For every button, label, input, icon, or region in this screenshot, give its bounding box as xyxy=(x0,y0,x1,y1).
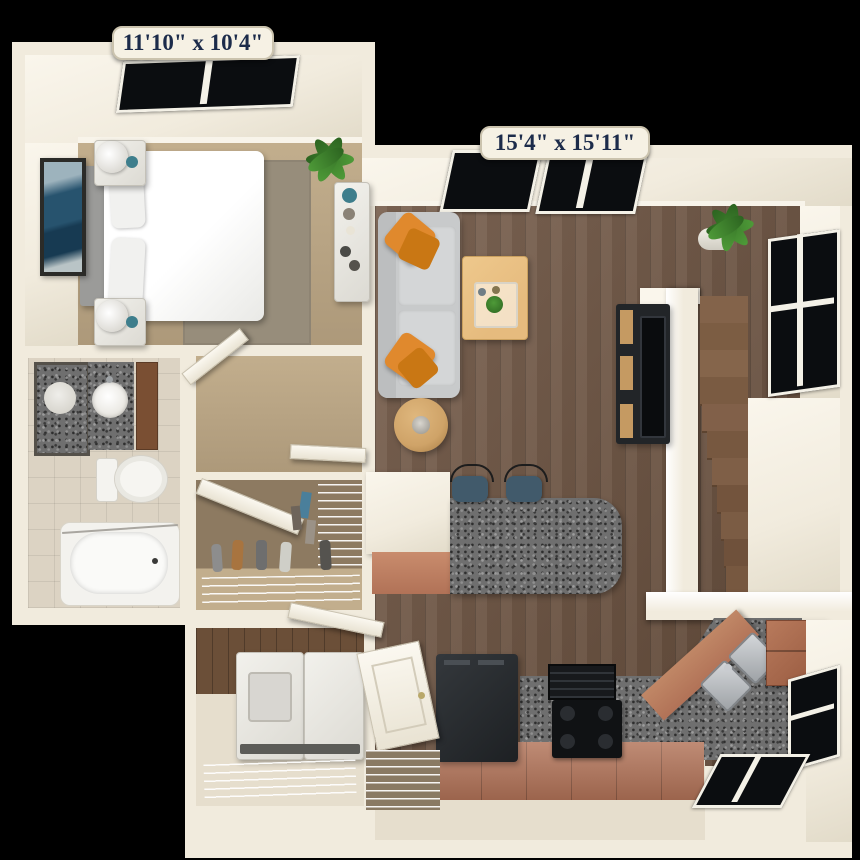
stair-step xyxy=(721,512,748,541)
stair-step xyxy=(702,404,748,433)
living-right-window xyxy=(768,229,840,397)
stair-step xyxy=(700,296,748,325)
shoe xyxy=(279,542,292,573)
table-lamp xyxy=(96,141,128,173)
range-hood xyxy=(548,664,616,700)
bar-base-cabinet xyxy=(372,552,450,594)
fridge-handle xyxy=(478,660,504,665)
shoe xyxy=(231,540,244,571)
right-window-mullion-v xyxy=(797,234,803,387)
bedroom-dimensions-label: 11'10" x 10'4" xyxy=(112,26,274,60)
stair-step xyxy=(700,377,748,406)
door-knob xyxy=(418,692,425,699)
stair-soffit-ledge xyxy=(646,592,852,620)
staircase xyxy=(700,296,748,594)
bathtub-drain xyxy=(152,558,158,564)
stair-step xyxy=(726,566,748,594)
breakfast-bar-counter xyxy=(450,498,622,594)
stair-step xyxy=(700,323,748,352)
bed-pillow xyxy=(108,237,146,307)
console-cubby xyxy=(620,356,633,390)
pantry-wire-shelf xyxy=(366,750,440,810)
stair-guard-wall xyxy=(666,288,698,594)
lamp-teal-accent xyxy=(126,156,138,168)
washer-door xyxy=(248,672,292,722)
tray-plant xyxy=(486,296,503,313)
stairwell-wall-face xyxy=(748,398,840,594)
vanity-cabinet xyxy=(136,362,158,450)
table-lamp xyxy=(96,300,128,332)
stair-step xyxy=(700,350,748,379)
console-cubby xyxy=(620,310,633,344)
lamp-teal-accent xyxy=(126,316,138,328)
decor-vase-teal xyxy=(342,188,357,203)
mirror-sink-reflection xyxy=(44,382,76,414)
stove-burner xyxy=(598,706,613,721)
shoe xyxy=(256,540,267,570)
television xyxy=(640,316,666,438)
stair-step xyxy=(717,485,748,514)
kitchen-return-wall xyxy=(366,472,450,554)
shoe-rack-shelf xyxy=(202,575,360,604)
fridge-handle xyxy=(444,660,470,665)
decor-sphere xyxy=(346,226,355,235)
decor-sphere xyxy=(340,246,351,257)
stair-step xyxy=(724,539,748,568)
living-dimensions-label: 15'4" x 15'11" xyxy=(480,126,650,160)
refrigerator xyxy=(436,654,518,762)
wall-art xyxy=(40,158,86,276)
stair-step xyxy=(712,458,748,487)
stove-burner xyxy=(598,734,613,749)
shoe xyxy=(319,540,332,571)
shoe xyxy=(211,544,223,573)
tray-cup xyxy=(492,286,500,294)
decor-sphere xyxy=(349,260,360,271)
side-table-lamp xyxy=(412,416,430,434)
vanity-sink xyxy=(92,382,128,418)
stair-step xyxy=(707,431,748,460)
toilet-bowl xyxy=(114,455,168,503)
console-cubby xyxy=(620,404,633,438)
tray-cup xyxy=(478,288,486,296)
living-plant xyxy=(694,196,764,262)
decor-sphere xyxy=(343,208,355,220)
laundry-wire-shelf xyxy=(203,759,356,798)
floor-plan: 11'10" x 10'4" 15'4" x 15'11" xyxy=(0,0,860,860)
appliance-control-strip xyxy=(240,744,360,754)
stove-burner xyxy=(560,734,575,749)
sink-faucet xyxy=(724,664,732,672)
stove-burner xyxy=(560,706,575,721)
sink-faucet xyxy=(106,376,113,383)
